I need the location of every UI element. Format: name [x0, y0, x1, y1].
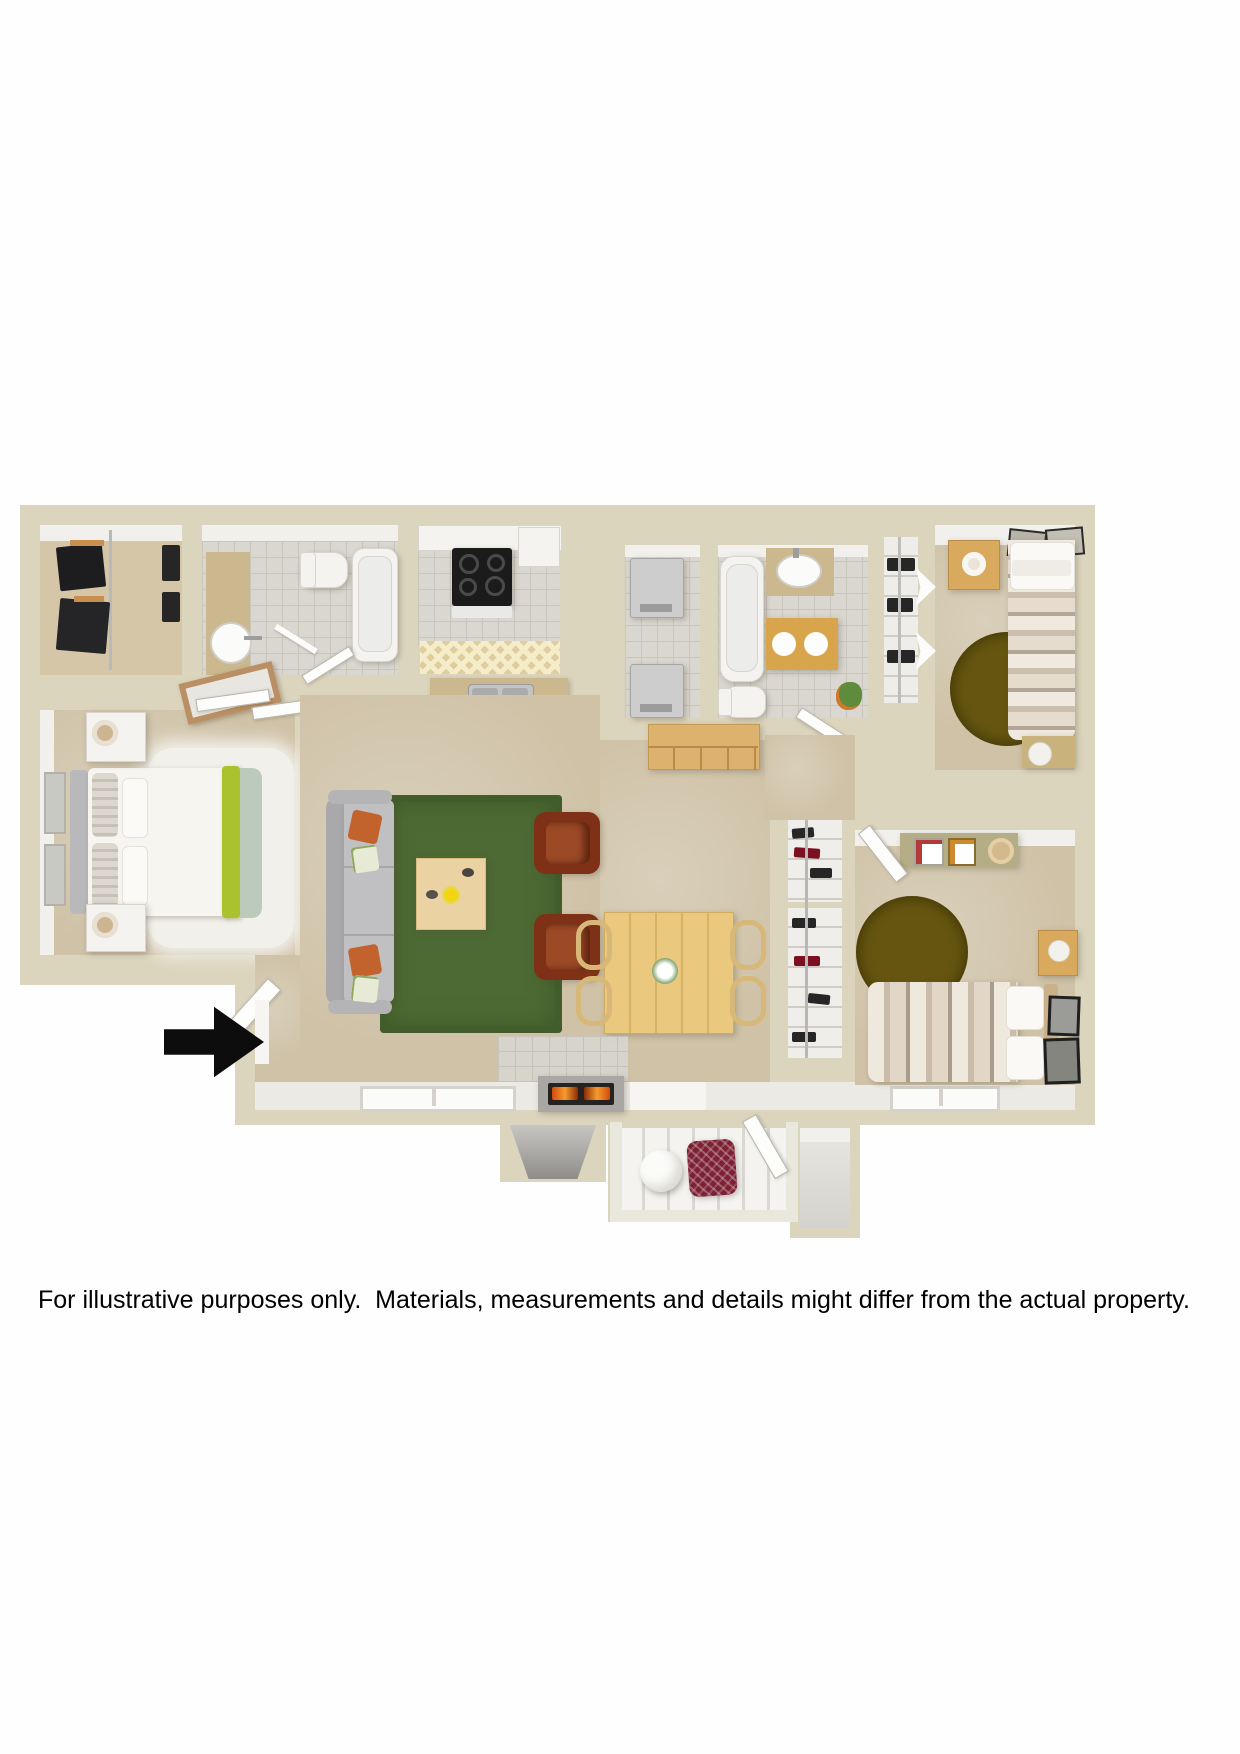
bedroom2-window	[890, 1086, 1000, 1112]
bedroom2-wall-art	[1047, 995, 1080, 1036]
vanity-faucet	[793, 548, 799, 558]
plant	[836, 682, 862, 710]
shoes	[808, 993, 831, 1005]
bedroom2-wall-art	[1043, 1037, 1081, 1084]
orange-pillow	[347, 809, 383, 845]
laundry-wall-face	[625, 545, 700, 557]
sink-faucet	[244, 636, 262, 640]
bedroom2-bed	[868, 982, 1018, 1082]
table-decor-pebble	[426, 890, 438, 899]
master-wall-art	[44, 844, 66, 906]
toilet-1-tank	[300, 552, 316, 588]
flower-vase	[652, 958, 678, 984]
mat-stool	[772, 632, 796, 656]
bedroom2-pillow	[1006, 1036, 1044, 1080]
desk-art	[914, 838, 944, 866]
clothes-hangers	[70, 540, 104, 546]
hallway-floor	[765, 735, 855, 820]
fireplace-embers	[552, 1087, 578, 1100]
floor-plan-page: For illustrative purposes only. Material…	[0, 0, 1240, 1754]
armchair-seat	[546, 822, 590, 864]
bathroom1-wall-face	[202, 525, 398, 541]
hanging-clothes	[162, 545, 180, 581]
dining-chair	[576, 976, 612, 1026]
master-lamp	[92, 720, 118, 746]
sofa-armrest	[328, 790, 392, 804]
console-cubbies	[648, 746, 758, 770]
master-bed-sage-throw	[240, 768, 262, 918]
table-decor-flower	[442, 886, 460, 904]
refrigerator	[518, 527, 560, 567]
linen-rod	[898, 537, 901, 703]
patio-door-opening	[630, 1082, 706, 1110]
hanging-clothes	[162, 592, 180, 622]
master-bed-lime-runner	[222, 766, 240, 918]
master-pillow	[122, 846, 148, 906]
dining-chair	[576, 920, 612, 970]
dining-chair	[730, 920, 766, 970]
closet-rail	[805, 820, 808, 1058]
master-wall-art	[44, 772, 66, 834]
master-pillow	[92, 843, 118, 907]
patio-wall	[610, 1210, 798, 1222]
master-headboard	[70, 770, 88, 914]
sofa-back	[326, 798, 346, 1004]
shoes	[792, 827, 815, 839]
stove-burner	[459, 578, 477, 596]
mat-stool	[804, 632, 828, 656]
linen-items	[887, 650, 915, 663]
storage-closet-floor	[800, 1128, 850, 1228]
sofa-armrest	[328, 1000, 392, 1014]
entry-threshold	[255, 1000, 269, 1064]
oven-front	[452, 606, 512, 618]
desk-art	[948, 838, 976, 866]
table-decor-pebble	[462, 868, 474, 877]
stove-burner	[459, 554, 479, 574]
shoes	[792, 1032, 816, 1042]
stove-burner	[487, 554, 505, 572]
fireplace-embers	[584, 1087, 610, 1100]
clothes-hangers	[74, 596, 104, 602]
bathtub-2-basin	[726, 564, 758, 672]
vessel-sink	[210, 622, 252, 664]
closet-rod	[109, 530, 112, 670]
bedroom1-folded-blanket	[1012, 560, 1071, 576]
bedroom2-pillow	[1006, 986, 1044, 1030]
sofa-cushion-line	[344, 934, 394, 936]
patio-wall	[610, 1122, 622, 1218]
desk-mirror	[988, 838, 1014, 864]
vanity-sink	[776, 554, 822, 588]
living-window	[360, 1086, 516, 1112]
orange-pillow	[348, 944, 383, 979]
window-mullion	[939, 1086, 943, 1106]
wicker-chair	[686, 1138, 738, 1197]
master-pillow	[92, 773, 118, 837]
bedroom1-stool	[1028, 742, 1052, 766]
disclaimer-text: For illustrative purposes only. Material…	[38, 1286, 1190, 1315]
storage-wall-face	[800, 1128, 850, 1142]
hanging-clothes	[56, 543, 106, 592]
master-lamp	[92, 912, 118, 938]
window-mullion	[432, 1086, 436, 1106]
shoes	[792, 918, 816, 928]
washer-door	[640, 604, 672, 612]
leaf-print-pillow	[351, 975, 380, 1004]
bistro-table	[640, 1150, 682, 1192]
toilet-2-tank	[718, 688, 732, 716]
shoes	[810, 868, 832, 878]
stove-burner	[485, 576, 505, 596]
master-pillow	[122, 778, 148, 838]
hanging-clothes	[56, 598, 110, 654]
dryer-door	[640, 704, 672, 712]
dining-chair	[730, 976, 766, 1026]
bedroom1-lamp	[962, 552, 986, 576]
leaf-print-pillow	[350, 844, 379, 873]
bathtub-1-basin	[358, 556, 392, 652]
kitchen-counter-runner	[420, 641, 560, 674]
bedroom2-lamp	[1048, 940, 1070, 962]
linen-items	[887, 558, 915, 571]
